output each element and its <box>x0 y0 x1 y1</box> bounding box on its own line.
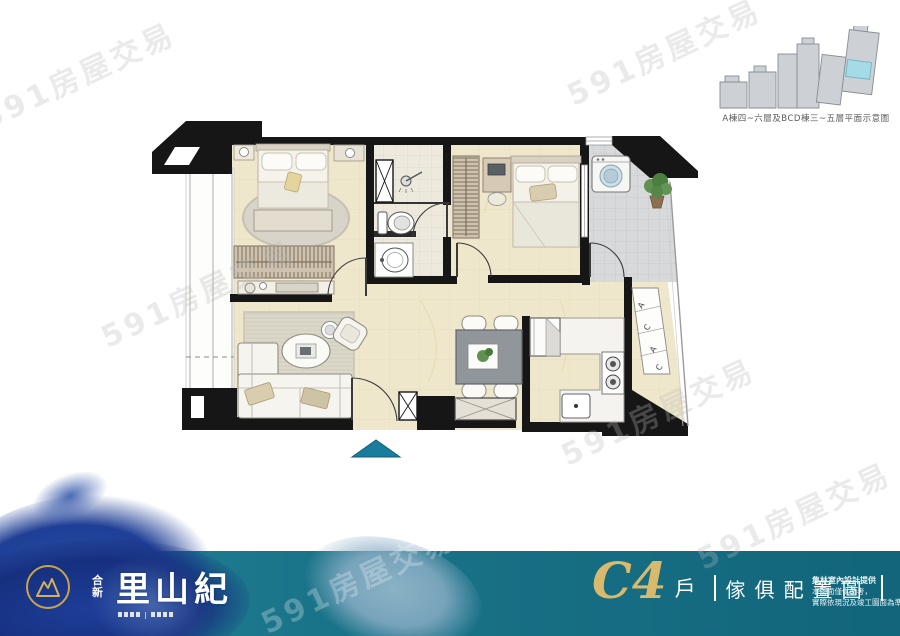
mountain-icon <box>35 576 61 598</box>
mirror <box>276 283 318 292</box>
divider-bar <box>714 575 716 601</box>
coffee-table <box>282 334 330 368</box>
brand-name: 里山紀 <box>116 562 233 611</box>
disclaimer-line2: 本圖面僅供參考， <box>812 586 900 597</box>
pillow <box>548 166 577 182</box>
brand-prefix: 合 新 <box>92 575 104 599</box>
toilet <box>378 212 414 234</box>
double-bed <box>256 144 330 208</box>
pillow <box>296 153 326 170</box>
lamp <box>346 149 355 158</box>
splash-tip <box>25 461 116 532</box>
site-plan-caption: A棟四~六層及BCD棟三~五層平面示意圖 <box>716 112 896 124</box>
washing-machine <box>592 156 630 192</box>
dresser <box>238 281 334 294</box>
site-key-plan: A棟四~六層及BCD棟三~五層平面示意圖 <box>716 26 896 126</box>
dining-area <box>455 316 522 420</box>
brand-logo <box>26 565 70 609</box>
dining-table <box>456 330 522 384</box>
desk-chair <box>488 193 506 206</box>
disclaimer-line1: 集林室內設計提供 <box>812 575 900 586</box>
wardrobe2 <box>453 156 479 238</box>
living-room <box>238 312 370 418</box>
shoe-cabinet <box>455 398 516 420</box>
kitchen-sink <box>562 394 590 418</box>
unit-suffix: 戶 <box>675 573 696 603</box>
entrance-arrow <box>352 440 400 457</box>
brand-block: 合 新 里山紀 <box>26 562 233 611</box>
stove <box>602 352 624 394</box>
brand-tagline <box>118 612 173 619</box>
pillow <box>262 153 292 170</box>
accent-pillow <box>529 183 557 201</box>
desk-monitor <box>488 164 505 175</box>
disclaimer-line3: 實際依現況及竣工圖面為準。 <box>812 597 900 608</box>
pillow <box>516 166 545 182</box>
bathroom-sink <box>375 243 413 277</box>
disclaimer: 集林室內設計提供 本圖面僅供參考， 實際依現況及竣工圖面為準。 <box>812 575 900 608</box>
single-bed <box>511 156 581 247</box>
table-decor <box>300 347 311 355</box>
floor-plan: A C A C <box>150 112 710 464</box>
window-band-left <box>186 168 234 390</box>
wardrobe <box>234 246 334 278</box>
building-c <box>778 54 797 108</box>
highlighted-unit <box>846 60 872 80</box>
fridge <box>530 318 560 356</box>
building-a <box>720 82 747 108</box>
faucet <box>380 258 384 262</box>
site-key-plan-drawing <box>716 26 896 112</box>
page: A C A C <box>0 0 900 636</box>
stool <box>245 283 255 293</box>
brand-prefix-bottom: 新 <box>92 587 104 599</box>
lamp <box>240 148 249 157</box>
bed-bench <box>254 210 332 231</box>
building-b <box>749 72 776 108</box>
building-d <box>816 26 880 109</box>
unit-label: C4 <box>592 556 667 606</box>
brand-prefix-top: 合 <box>92 575 104 587</box>
